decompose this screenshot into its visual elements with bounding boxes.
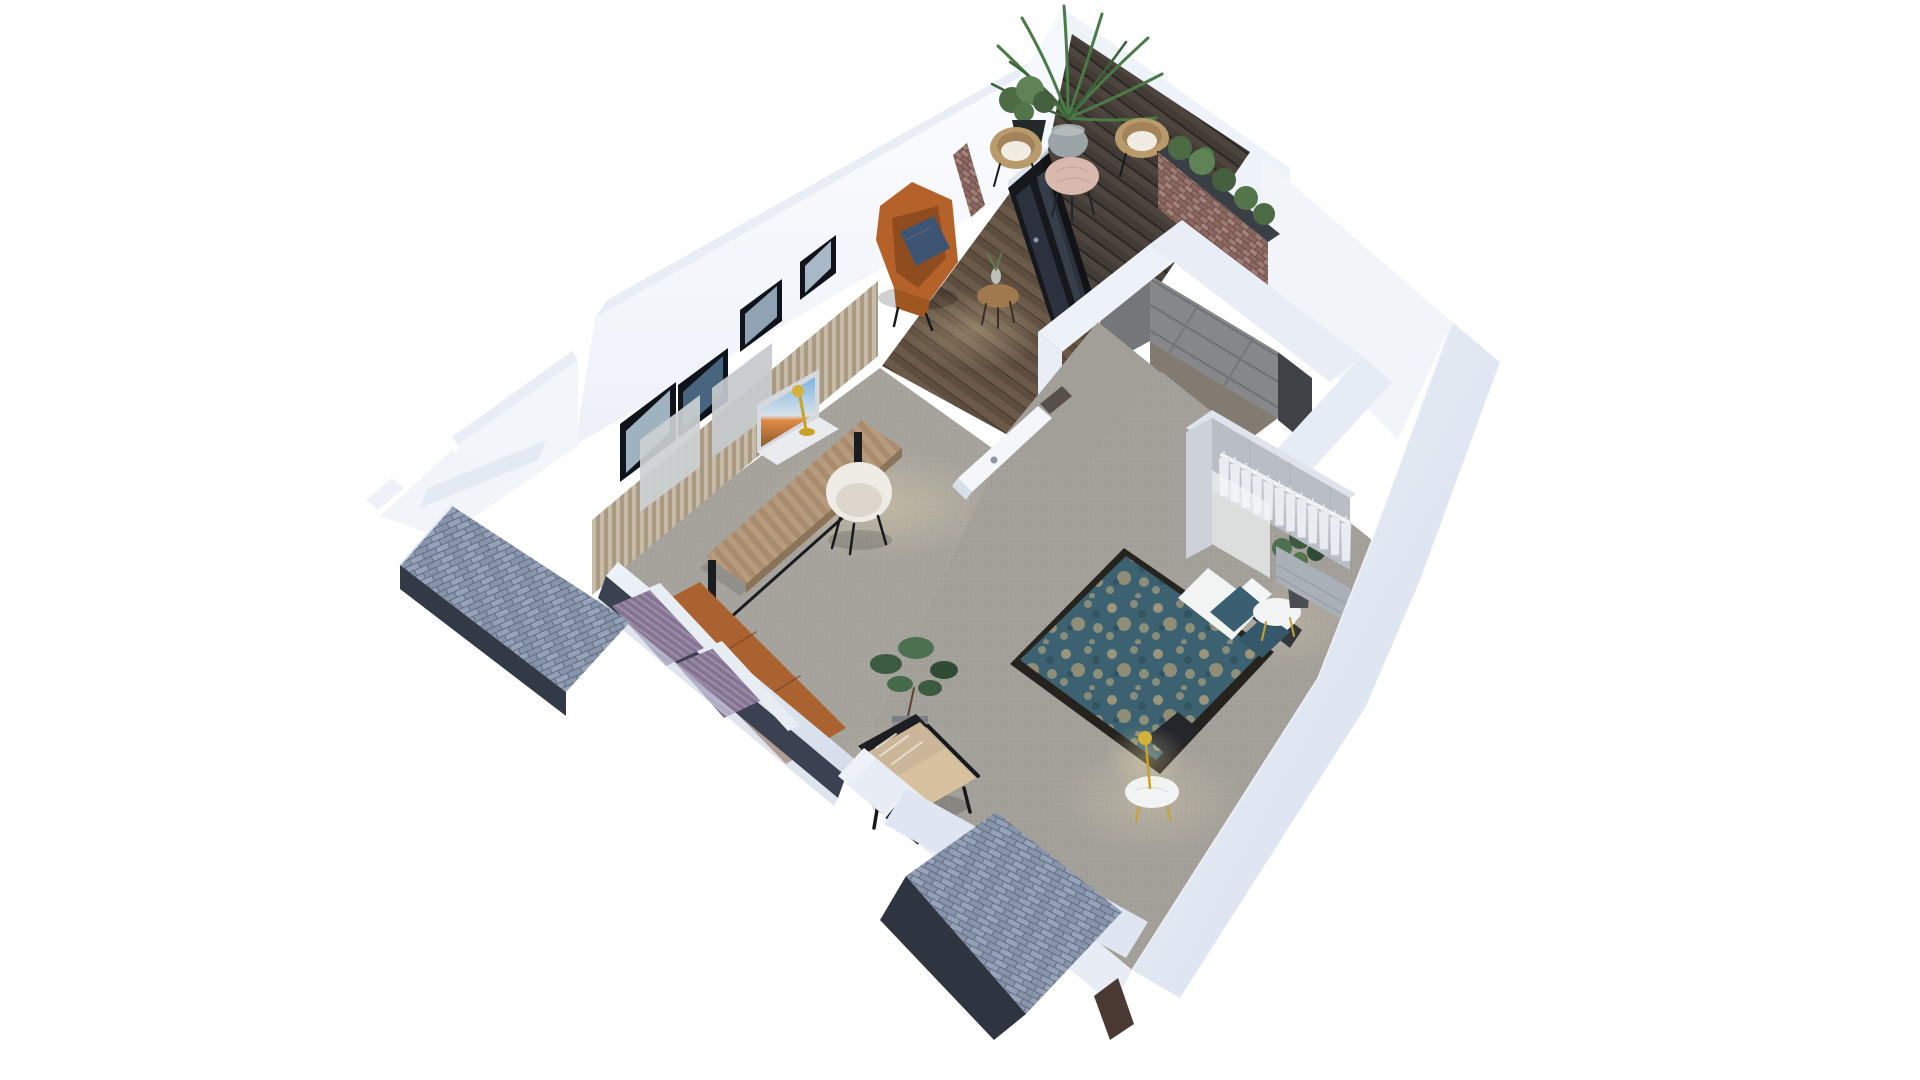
planter-plant [1189, 149, 1215, 175]
desk-lamp-head [792, 385, 804, 397]
floorplan-svg [0, 0, 1920, 1080]
fig-leaf [918, 680, 942, 696]
palm-pot-rim [1051, 124, 1085, 136]
door-handle [1034, 238, 1039, 243]
fig-leaf [898, 637, 934, 659]
wingback-chair-leg [894, 308, 898, 326]
desk-lamp-base [799, 428, 815, 436]
hanging-garment [1297, 499, 1307, 537]
planter-plant [1168, 136, 1192, 160]
hanging-garment [1308, 505, 1318, 543]
hanging-garment [1286, 493, 1296, 531]
hanging-garment [1330, 517, 1340, 555]
hanging-garment [1319, 511, 1329, 549]
bistro-table-top [1045, 157, 1099, 195]
apartment-3d-floorplan [0, 0, 1920, 1080]
wicker-chair-cushion [1127, 131, 1157, 151]
planter-plant [1253, 203, 1275, 225]
side-table-top [977, 284, 1019, 308]
left-dormer-roof [366, 440, 630, 716]
shrub-foliage [1033, 91, 1055, 113]
fig-leaf [930, 661, 958, 679]
planter-plant [1212, 168, 1236, 192]
door-handle [991, 457, 998, 464]
planter-plant [1234, 186, 1258, 210]
hanging-garment [1341, 523, 1351, 561]
fig-leaf [887, 676, 913, 692]
tub-chair-seat [836, 483, 882, 517]
wicker-chair-cushion [1001, 141, 1031, 161]
fig-leaf [870, 654, 902, 674]
wardrobe-side-panel [1186, 418, 1212, 559]
shrub-foliage [1014, 102, 1034, 122]
table-lamp-head [1138, 731, 1152, 745]
hanging-garment [1274, 488, 1284, 526]
